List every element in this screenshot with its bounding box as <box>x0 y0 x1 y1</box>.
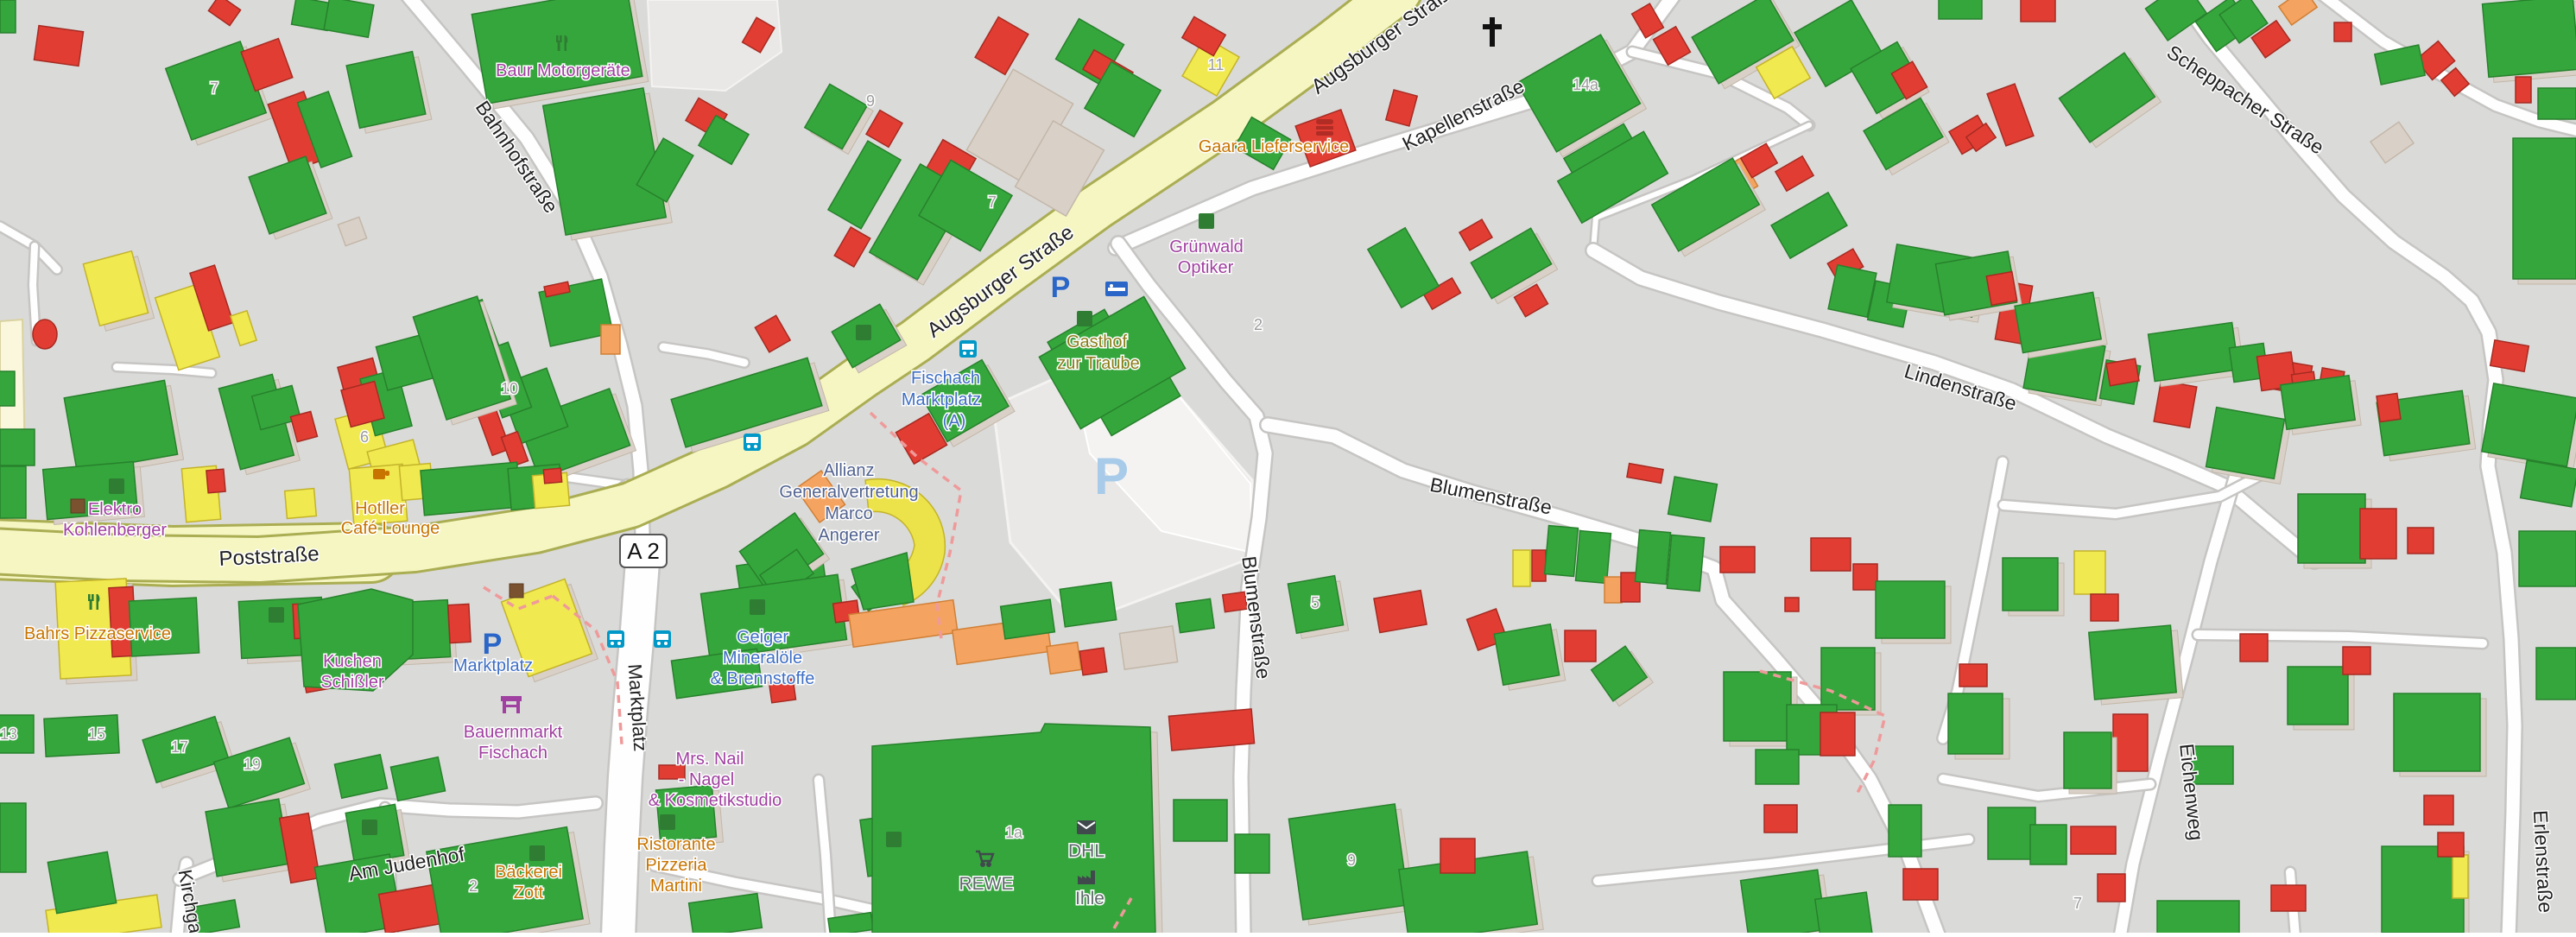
svg-text:Bauernmarkt: Bauernmarkt <box>464 723 563 742</box>
svg-text:Pizzeria: Pizzeria <box>645 856 707 875</box>
svg-text:Allianz: Allianz <box>824 461 875 480</box>
svg-text:6: 6 <box>360 428 369 446</box>
svg-text:11: 11 <box>1208 56 1225 73</box>
svg-text:P: P <box>1051 271 1071 304</box>
svg-text:Café Lounge: Café Lounge <box>341 519 440 538</box>
svg-text:Mrs. Nail: Mrs. Nail <box>676 750 744 769</box>
svg-text:Gasthof: Gasthof <box>1066 332 1127 351</box>
svg-text:2: 2 <box>469 877 478 895</box>
svg-text:Bäckerei: Bäckerei <box>495 863 562 882</box>
svg-text:Baur Motorgeräte: Baur Motorgeräte <box>496 61 630 80</box>
svg-text:(A): (A) <box>943 412 966 431</box>
svg-text:7: 7 <box>210 79 218 97</box>
svg-text:Martini: Martini <box>650 877 702 896</box>
svg-text:9: 9 <box>866 92 875 110</box>
svg-text:Ristorante: Ristorante <box>636 835 715 854</box>
svg-text:Ihle: Ihle <box>1075 889 1104 909</box>
svg-text:13: 13 <box>0 725 17 743</box>
svg-text:zur Traube: zur Traube <box>1057 354 1140 373</box>
svg-text:- Nagel: - Nagel <box>679 770 734 789</box>
svg-text:Angerer: Angerer <box>818 526 879 545</box>
svg-text:1a: 1a <box>1005 824 1023 841</box>
svg-text:Kuchen: Kuchen <box>323 652 382 671</box>
svg-text:REWE: REWE <box>959 874 1014 894</box>
svg-text:15: 15 <box>88 725 105 743</box>
svg-text:Optiker: Optiker <box>1178 258 1234 277</box>
svg-text:17: 17 <box>171 738 188 756</box>
svg-text:10: 10 <box>501 380 518 397</box>
svg-text:Marktplatz: Marktplatz <box>902 390 981 409</box>
svg-text:5: 5 <box>1311 594 1320 611</box>
svg-text:9: 9 <box>1347 852 1356 869</box>
svg-text:Zott: Zott <box>514 883 544 902</box>
svg-text:19: 19 <box>244 756 261 773</box>
svg-text:Schißler: Schißler <box>320 673 384 692</box>
svg-text:Gaara Lieferservice: Gaara Lieferservice <box>1199 137 1350 156</box>
svg-text:Hotller: Hotller <box>355 499 405 518</box>
svg-text:& Kosmetikstudio: & Kosmetikstudio <box>649 791 782 810</box>
svg-text:Geiger: Geiger <box>737 628 788 647</box>
svg-text:7: 7 <box>2073 895 2082 912</box>
svg-text:Elektro: Elektro <box>88 500 142 519</box>
svg-text:7: 7 <box>988 193 997 211</box>
svg-text:P: P <box>483 628 503 661</box>
svg-text:Kohlenberger: Kohlenberger <box>63 521 167 540</box>
svg-text:2: 2 <box>1254 316 1263 333</box>
svg-text:Fischach: Fischach <box>911 369 980 388</box>
svg-text:& Brennstoffe: & Brennstoffe <box>711 669 815 688</box>
svg-text:DHL: DHL <box>1068 841 1104 861</box>
svg-text:Grünwald: Grünwald <box>1169 237 1244 256</box>
svg-text:Generalvertretung: Generalvertretung <box>779 483 918 502</box>
svg-text:14a: 14a <box>1573 76 1599 93</box>
svg-text:P: P <box>1094 447 1129 505</box>
svg-text:Mineralöle: Mineralöle <box>723 649 802 668</box>
svg-text:Fischach: Fischach <box>478 744 547 763</box>
svg-text:A 2: A 2 <box>627 538 660 564</box>
svg-text:Bahrs Pizzaservice: Bahrs Pizzaservice <box>24 624 171 643</box>
svg-text:Marco: Marco <box>825 504 873 523</box>
